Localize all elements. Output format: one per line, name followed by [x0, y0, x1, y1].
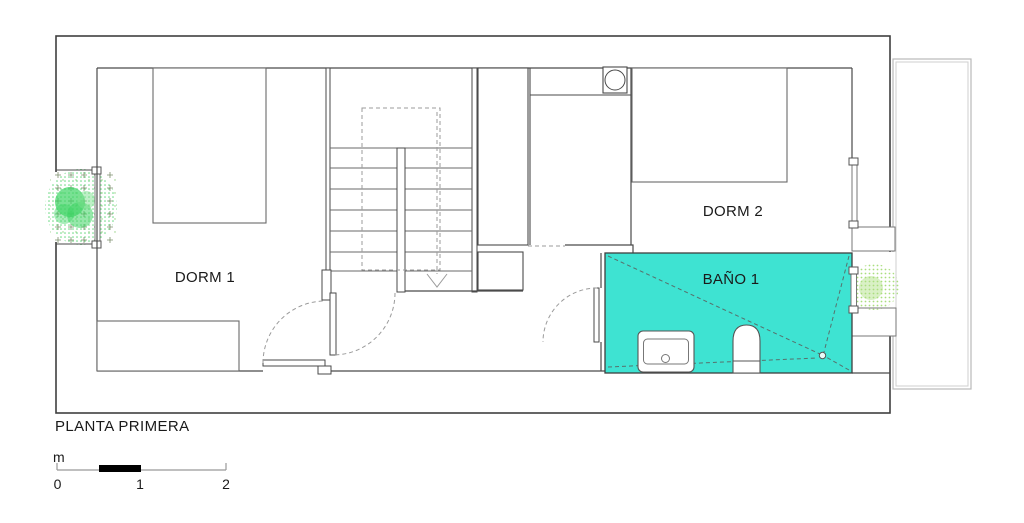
floor-plan-canvas: DORM 1 DORM 2 BAÑO 1 PLANTA PRIMERA m 0 …	[0, 0, 1024, 523]
scale-bar-segment	[99, 465, 141, 472]
room-label-dorm2: DORM 2	[703, 203, 763, 220]
floor-plan-drawing: DORM 1 DORM 2 BAÑO 1 PLANTA PRIMERA m 0 …	[0, 0, 1024, 523]
dorm2-bed	[632, 68, 787, 182]
appliance-icon	[605, 70, 625, 90]
scale-tick-2: 2	[222, 476, 230, 492]
dorm1-bed	[153, 68, 266, 223]
sink	[638, 331, 694, 372]
plan-title: PLANTA PRIMERA	[55, 418, 190, 435]
toilet	[733, 325, 760, 373]
closets	[478, 68, 530, 290]
dorm1-wardrobe	[97, 321, 239, 371]
terrace-outline	[893, 59, 971, 389]
room-label-dorm1: DORM 1	[175, 269, 235, 286]
scale-bar: m 0 1 2	[53, 449, 230, 492]
scale-tick-0: 0	[54, 476, 62, 492]
scale-tick-1: 1	[136, 476, 144, 492]
scale-unit-label: m	[53, 449, 65, 465]
left-planting-hatch	[45, 169, 118, 245]
room-label-bano1: BAÑO 1	[703, 271, 760, 288]
floor-drain	[819, 352, 825, 358]
